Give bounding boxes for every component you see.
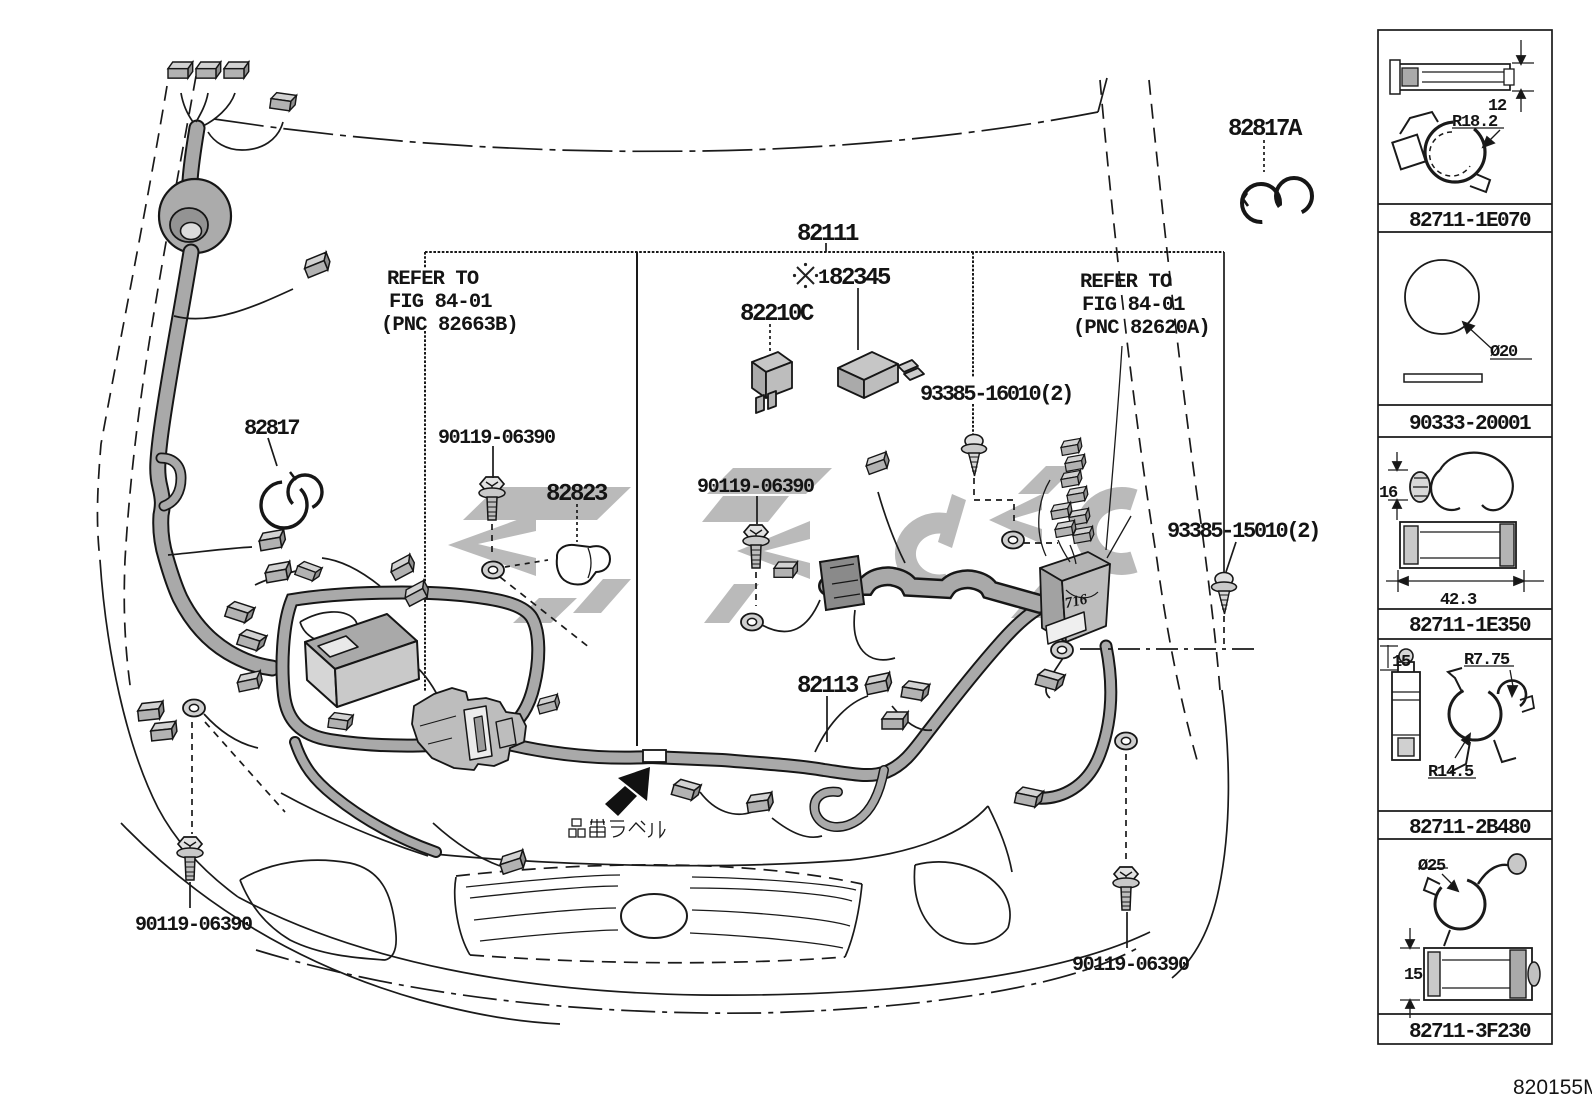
svg-text:42.3: 42.3: [1440, 591, 1477, 610]
svg-text:90119-06390: 90119-06390: [1072, 954, 1189, 977]
svg-text:R7.75: R7.75: [1464, 651, 1510, 670]
svg-text:Ø25: Ø25: [1418, 857, 1446, 876]
svg-text:82823: 82823: [546, 481, 608, 508]
svg-text:16: 16: [1379, 484, 1398, 503]
svg-text:82817: 82817: [244, 416, 299, 441]
svg-text:82711-1E350: 82711-1E350: [1409, 615, 1531, 638]
svg-text:82210C: 82210C: [740, 301, 814, 328]
svg-text:FIG 84-01: FIG 84-01: [389, 291, 492, 314]
svg-text:(PNC 82620A): (PNC 82620A): [1073, 317, 1210, 340]
svg-text:90119-06390: 90119-06390: [135, 914, 252, 937]
svg-text:REFER TO: REFER TO: [387, 268, 479, 291]
svg-text:82711-2B480: 82711-2B480: [1409, 817, 1531, 840]
svg-text:82345: 82345: [829, 265, 891, 292]
svg-text:82711-3F230: 82711-3F230: [1409, 1021, 1531, 1044]
svg-text:93385-15010(2): 93385-15010(2): [1167, 519, 1319, 544]
svg-text:82711-1E070: 82711-1E070: [1409, 210, 1531, 233]
svg-text:R14.5: R14.5: [1428, 763, 1474, 782]
svg-text:90333-20001: 90333-20001: [1409, 413, 1531, 436]
svg-text:820155M: 820155M: [1513, 1076, 1592, 1099]
svg-text:REFER TO: REFER TO: [1080, 271, 1172, 294]
svg-text:93385-16010(2): 93385-16010(2): [920, 382, 1072, 407]
svg-text:(PNC 82663B): (PNC 82663B): [381, 314, 518, 337]
svg-text:15: 15: [1392, 653, 1411, 672]
svg-text:FIG 84-01: FIG 84-01: [1082, 294, 1185, 317]
svg-text:90119-06390: 90119-06390: [438, 427, 555, 450]
svg-text:82817A: 82817A: [1228, 116, 1303, 143]
svg-text:15: 15: [1404, 966, 1423, 985]
svg-text:90119-06390: 90119-06390: [697, 476, 814, 499]
svg-text:82113: 82113: [797, 673, 859, 700]
svg-text:82111: 82111: [797, 221, 859, 248]
svg-text:Ø20: Ø20: [1490, 343, 1518, 362]
svg-text:R18.2: R18.2: [1452, 113, 1498, 132]
